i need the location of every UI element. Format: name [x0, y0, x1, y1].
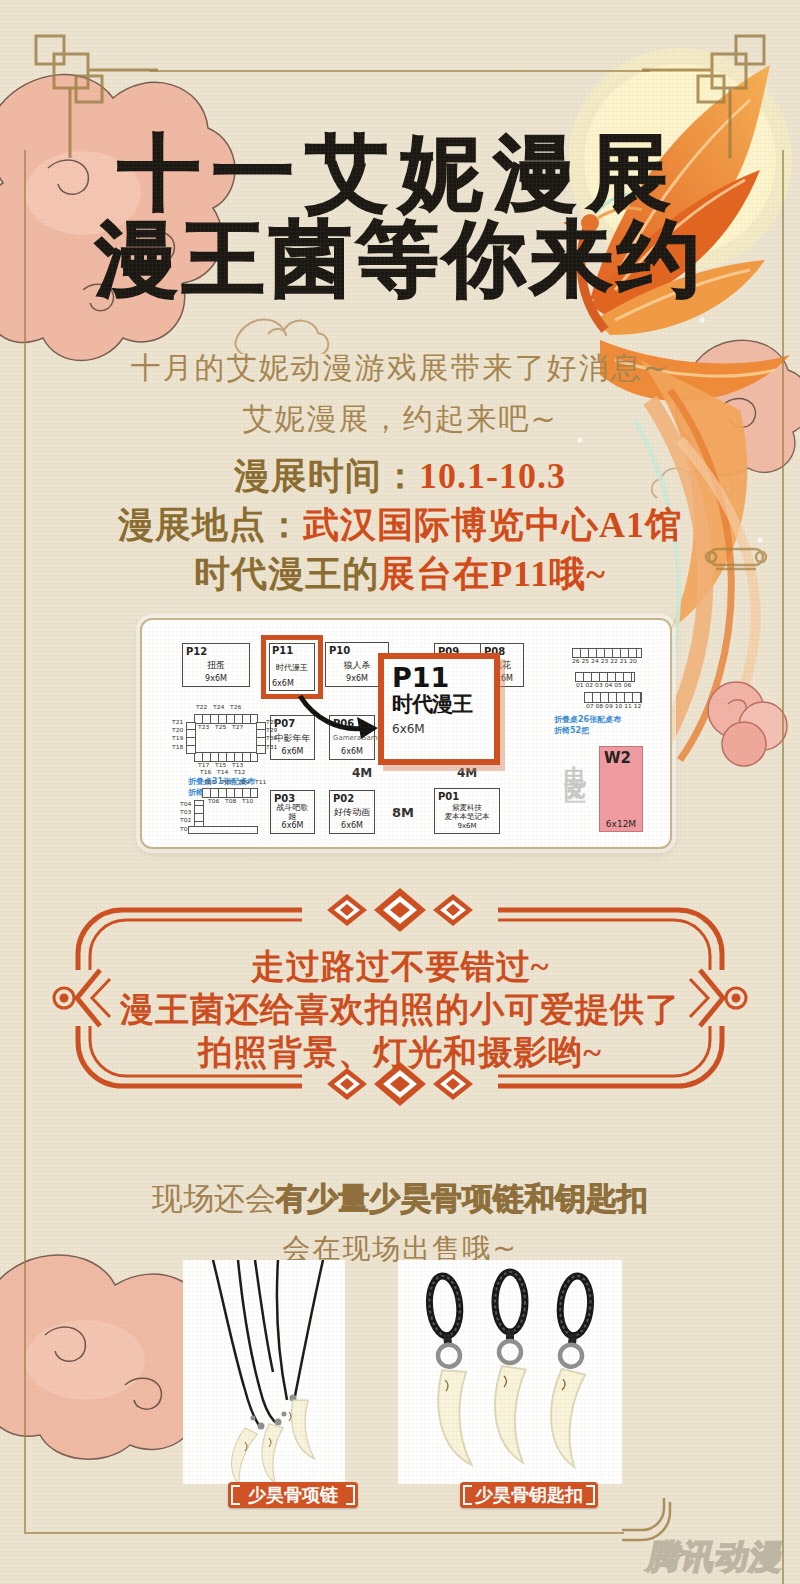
booth-size: 6x6M	[274, 748, 311, 757]
necklace-label: 少昊骨项链	[248, 1483, 338, 1507]
callout-size: 6x6M	[392, 723, 486, 736]
callout-id: P11	[392, 663, 486, 693]
booth-id: P01	[438, 791, 496, 802]
watermark-logo: 腾讯动漫	[643, 1535, 789, 1580]
table-labels: T28 T29 T30 T31	[266, 718, 277, 750]
dim-4m-right: 4M	[457, 766, 477, 780]
callout-name: 时代漫王	[392, 693, 486, 717]
booth-name: 扭蛋	[186, 661, 246, 671]
table-strip	[256, 722, 266, 754]
keychain-label: 少昊骨钥匙扣	[475, 1483, 583, 1507]
highlight-line1: 走过路过不要错过~	[0, 944, 800, 990]
booth-name: 紫麦科技 麦本本笔记本	[438, 804, 496, 821]
necklace-illustration	[183, 1260, 345, 1484]
dim-4m-left: 4M	[352, 766, 372, 780]
poster-title-line2: 漫王菌等你来约	[0, 218, 800, 300]
floor-plan-card: P12 扭蛋 9x6M P11 时代漫王 6x6M P10 狼人杀 9x6M P…	[140, 618, 672, 849]
event-time-label: 漫展时间：	[234, 456, 419, 496]
table-labels: T22 T24 T26	[196, 704, 241, 711]
event-time-line: 漫展时间：10.1-10.3	[0, 452, 800, 501]
booth-p12: P12 扭蛋 9x6M	[182, 643, 250, 687]
intro-line2: 艾妮漫展，约起来吧~	[0, 399, 800, 440]
table-strip	[194, 752, 258, 762]
table-bar	[188, 826, 258, 834]
table-labels: T06 T08 T10	[208, 798, 253, 805]
booth-p11: P11 时代漫王 6x6M	[269, 643, 315, 691]
event-place-label: 漫展地点：	[118, 505, 303, 545]
booth-id: P11	[272, 645, 312, 656]
booth-size: 6x6M	[333, 822, 371, 831]
dim-8m: 8M	[392, 805, 414, 820]
keychain-unit	[538, 1274, 609, 1472]
booth-name: 战斗吧歌姬	[274, 804, 311, 822]
booth-name: 狼人杀	[329, 661, 385, 671]
booth-id: P07	[274, 718, 311, 729]
booth-size: 9x6M	[186, 675, 246, 684]
booth-p11-callout: P11 时代漫王 6x6M	[378, 653, 500, 765]
event-place-value: 武汉国际博览中心A1馆	[303, 505, 682, 545]
diamond-ornament-top	[327, 888, 473, 932]
table-labels: 26 25 24 23 22 21 20	[572, 658, 637, 665]
table-strip	[186, 722, 196, 754]
poster: 十一艾妮漫展 漫王菌等你来约 十月的艾妮动漫游戏展带来了好消息~ 艾妮漫展，约起…	[0, 0, 800, 1584]
table-labels: T17 T15 T13	[198, 762, 243, 769]
poster-title-line1: 十一艾妮漫展	[0, 132, 800, 214]
booth-p11-highlight: P11 时代漫王 6x6M	[261, 635, 323, 699]
booth-name: 中影年年	[274, 734, 311, 744]
intro-line1: 十月的艾妮动漫游戏展带来了好消息~	[0, 348, 800, 389]
necklace-label-badge: 少昊骨项链	[228, 1482, 358, 1508]
table-strip	[202, 788, 258, 798]
booth-p03: P03 战斗吧歌姬 6x6M	[270, 790, 315, 834]
event-booth-prefix: 时代漫王的	[194, 554, 379, 594]
keychain-photo	[398, 1260, 622, 1484]
keychain-unit	[487, 1272, 542, 1466]
booth-size: 6x6M	[333, 748, 371, 757]
event-place-line: 漫展地点：武汉国际博览中心A1馆	[0, 501, 800, 550]
table-labels: T05 T07 T09 T11	[204, 779, 266, 786]
booth-p02: P02 好传动画 6x6M	[329, 790, 375, 834]
booth-p01: P01 紫麦科技 麦本本笔记本 9x6M	[434, 788, 500, 834]
booth-id: P10	[329, 645, 385, 656]
event-booth-highlight: 展台在P11哦~	[379, 554, 606, 594]
peony-flower	[708, 682, 787, 766]
table-strip	[194, 714, 258, 724]
gold-border-top	[150, 70, 650, 72]
keychain-unit	[419, 1273, 490, 1471]
keychain-label-badge: 少昊骨钥匙扣	[460, 1482, 598, 1508]
booth-id: P06	[333, 718, 371, 729]
booth-size: 6x6M	[274, 822, 311, 831]
highlight-line3: 拍照背景、灯光和摄影哟~	[0, 1030, 800, 1076]
booth-size: 9x6M	[438, 823, 496, 831]
table-labels: T16 T14 T12	[200, 769, 245, 776]
esports-zone-label: 电竞区	[560, 748, 590, 775]
table-labels: 07 08 09 10 11 12	[586, 703, 641, 710]
event-booth-line: 时代漫王的展台在P11哦~	[0, 550, 800, 599]
gold-border-bottom	[24, 1532, 624, 1534]
merch-line1: 现场还会有少量少昊骨项链和钥匙扣	[0, 1178, 800, 1220]
booth-size: 6x12M	[600, 819, 642, 829]
table-strip	[584, 692, 642, 703]
table-labels: T23 T25 T27	[198, 724, 243, 731]
booth-name: GameraGame	[333, 735, 371, 743]
booth-name: 时代漫王	[272, 664, 312, 673]
booth-id: W2	[600, 747, 642, 767]
table-strip	[572, 648, 642, 658]
tables-note-right: 折叠桌26张配桌布 折椅52把	[554, 714, 621, 736]
table-labels: T21 T20 T19 T18	[172, 718, 183, 750]
keychain-illustration	[398, 1260, 622, 1484]
merch-line1-normal: 现场还会	[152, 1180, 276, 1216]
table-labels: 01 02 03 04 05 06	[576, 682, 631, 689]
booth-size: 9x6M	[329, 675, 385, 684]
booth-w2: W2 6x12M	[599, 746, 643, 832]
necklace-photo	[183, 1260, 345, 1484]
booth-size: 6x6M	[272, 680, 312, 689]
merch-line1-bold: 有少量少昊骨项链和钥匙扣	[276, 1180, 648, 1216]
event-time-value: 10.1-10.3	[419, 456, 566, 496]
table-strip	[575, 672, 635, 682]
line-cloud-swirl-left	[228, 298, 353, 354]
highlight-line2: 漫王菌还给喜欢拍照的小可爱提供了	[0, 987, 800, 1033]
booth-id: P12	[186, 646, 246, 657]
booth-p06: P06 GameraGame 6x6M	[329, 715, 375, 760]
booth-id: P02	[333, 793, 371, 804]
booth-name: 好传动画	[333, 808, 371, 818]
